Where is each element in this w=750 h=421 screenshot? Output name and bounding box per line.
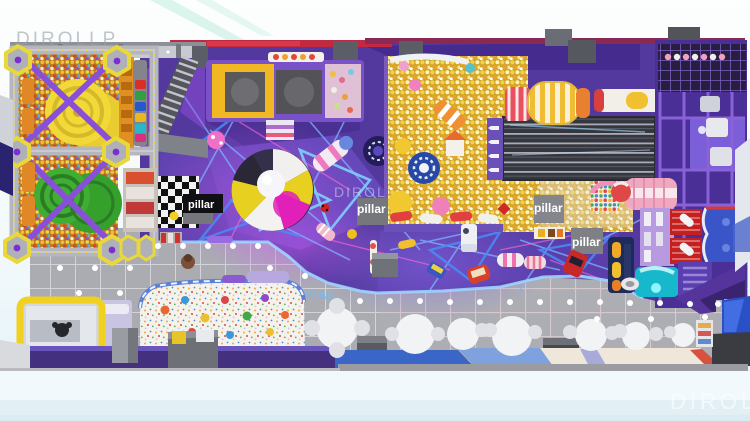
svg-text:pillar: pillar: [188, 199, 215, 211]
svg-text:pillar: pillar: [534, 201, 563, 215]
svg-text:DIROLLP: DIROLLP: [670, 389, 750, 414]
svg-text:DIROL: DIROL: [334, 184, 387, 200]
svg-text:pillar: pillar: [357, 202, 386, 216]
svg-text:DIROLLP: DIROLLP: [16, 29, 118, 50]
svg-text:pillar: pillar: [572, 235, 601, 249]
